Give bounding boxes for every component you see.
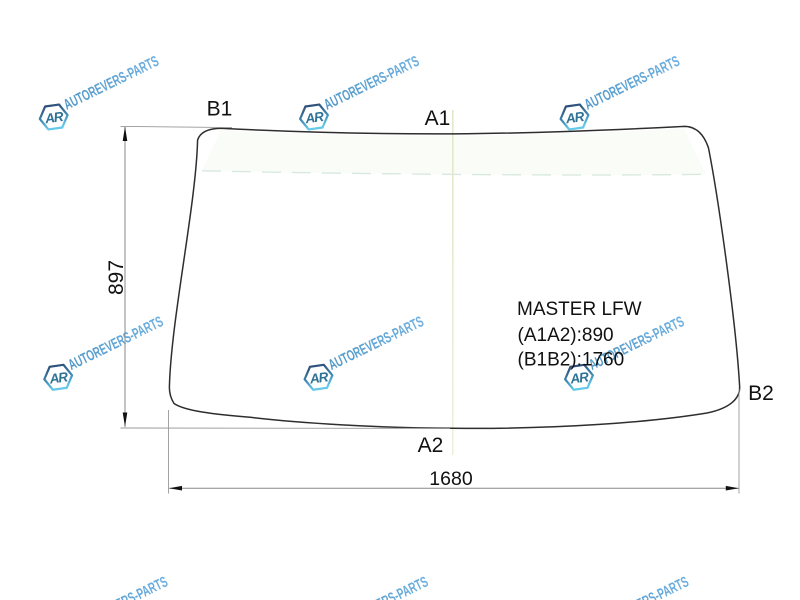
svg-text:(A1A2):890: (A1A2):890 [518, 325, 614, 346]
svg-text:MASTER LFW: MASTER LFW [517, 299, 642, 320]
svg-text:(B1B2):1760: (B1B2):1760 [518, 349, 625, 370]
svg-text:B2: B2 [748, 382, 774, 405]
svg-text:B1: B1 [207, 98, 233, 121]
svg-text:A2: A2 [418, 434, 444, 457]
svg-text:A1: A1 [425, 107, 451, 130]
svg-text:897: 897 [105, 260, 128, 295]
svg-text:1680: 1680 [429, 468, 473, 490]
